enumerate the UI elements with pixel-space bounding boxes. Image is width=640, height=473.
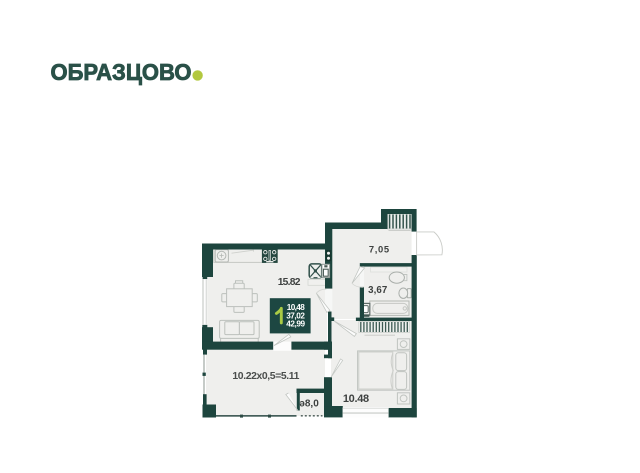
svg-text:ә8,0: ә8,0	[299, 398, 319, 409]
svg-text:ОБРАЗЦОВО: ОБРАЗЦОВО	[51, 59, 192, 85]
svg-text:3,67: 3,67	[368, 285, 387, 296]
svg-text:10.48: 10.48	[343, 393, 369, 405]
svg-text:7,05: 7,05	[369, 244, 389, 255]
svg-text:15.82: 15.82	[278, 277, 301, 288]
svg-text:42,99: 42,99	[286, 320, 305, 329]
svg-text:10.22x0,5=5.11: 10.22x0,5=5.11	[232, 371, 299, 382]
